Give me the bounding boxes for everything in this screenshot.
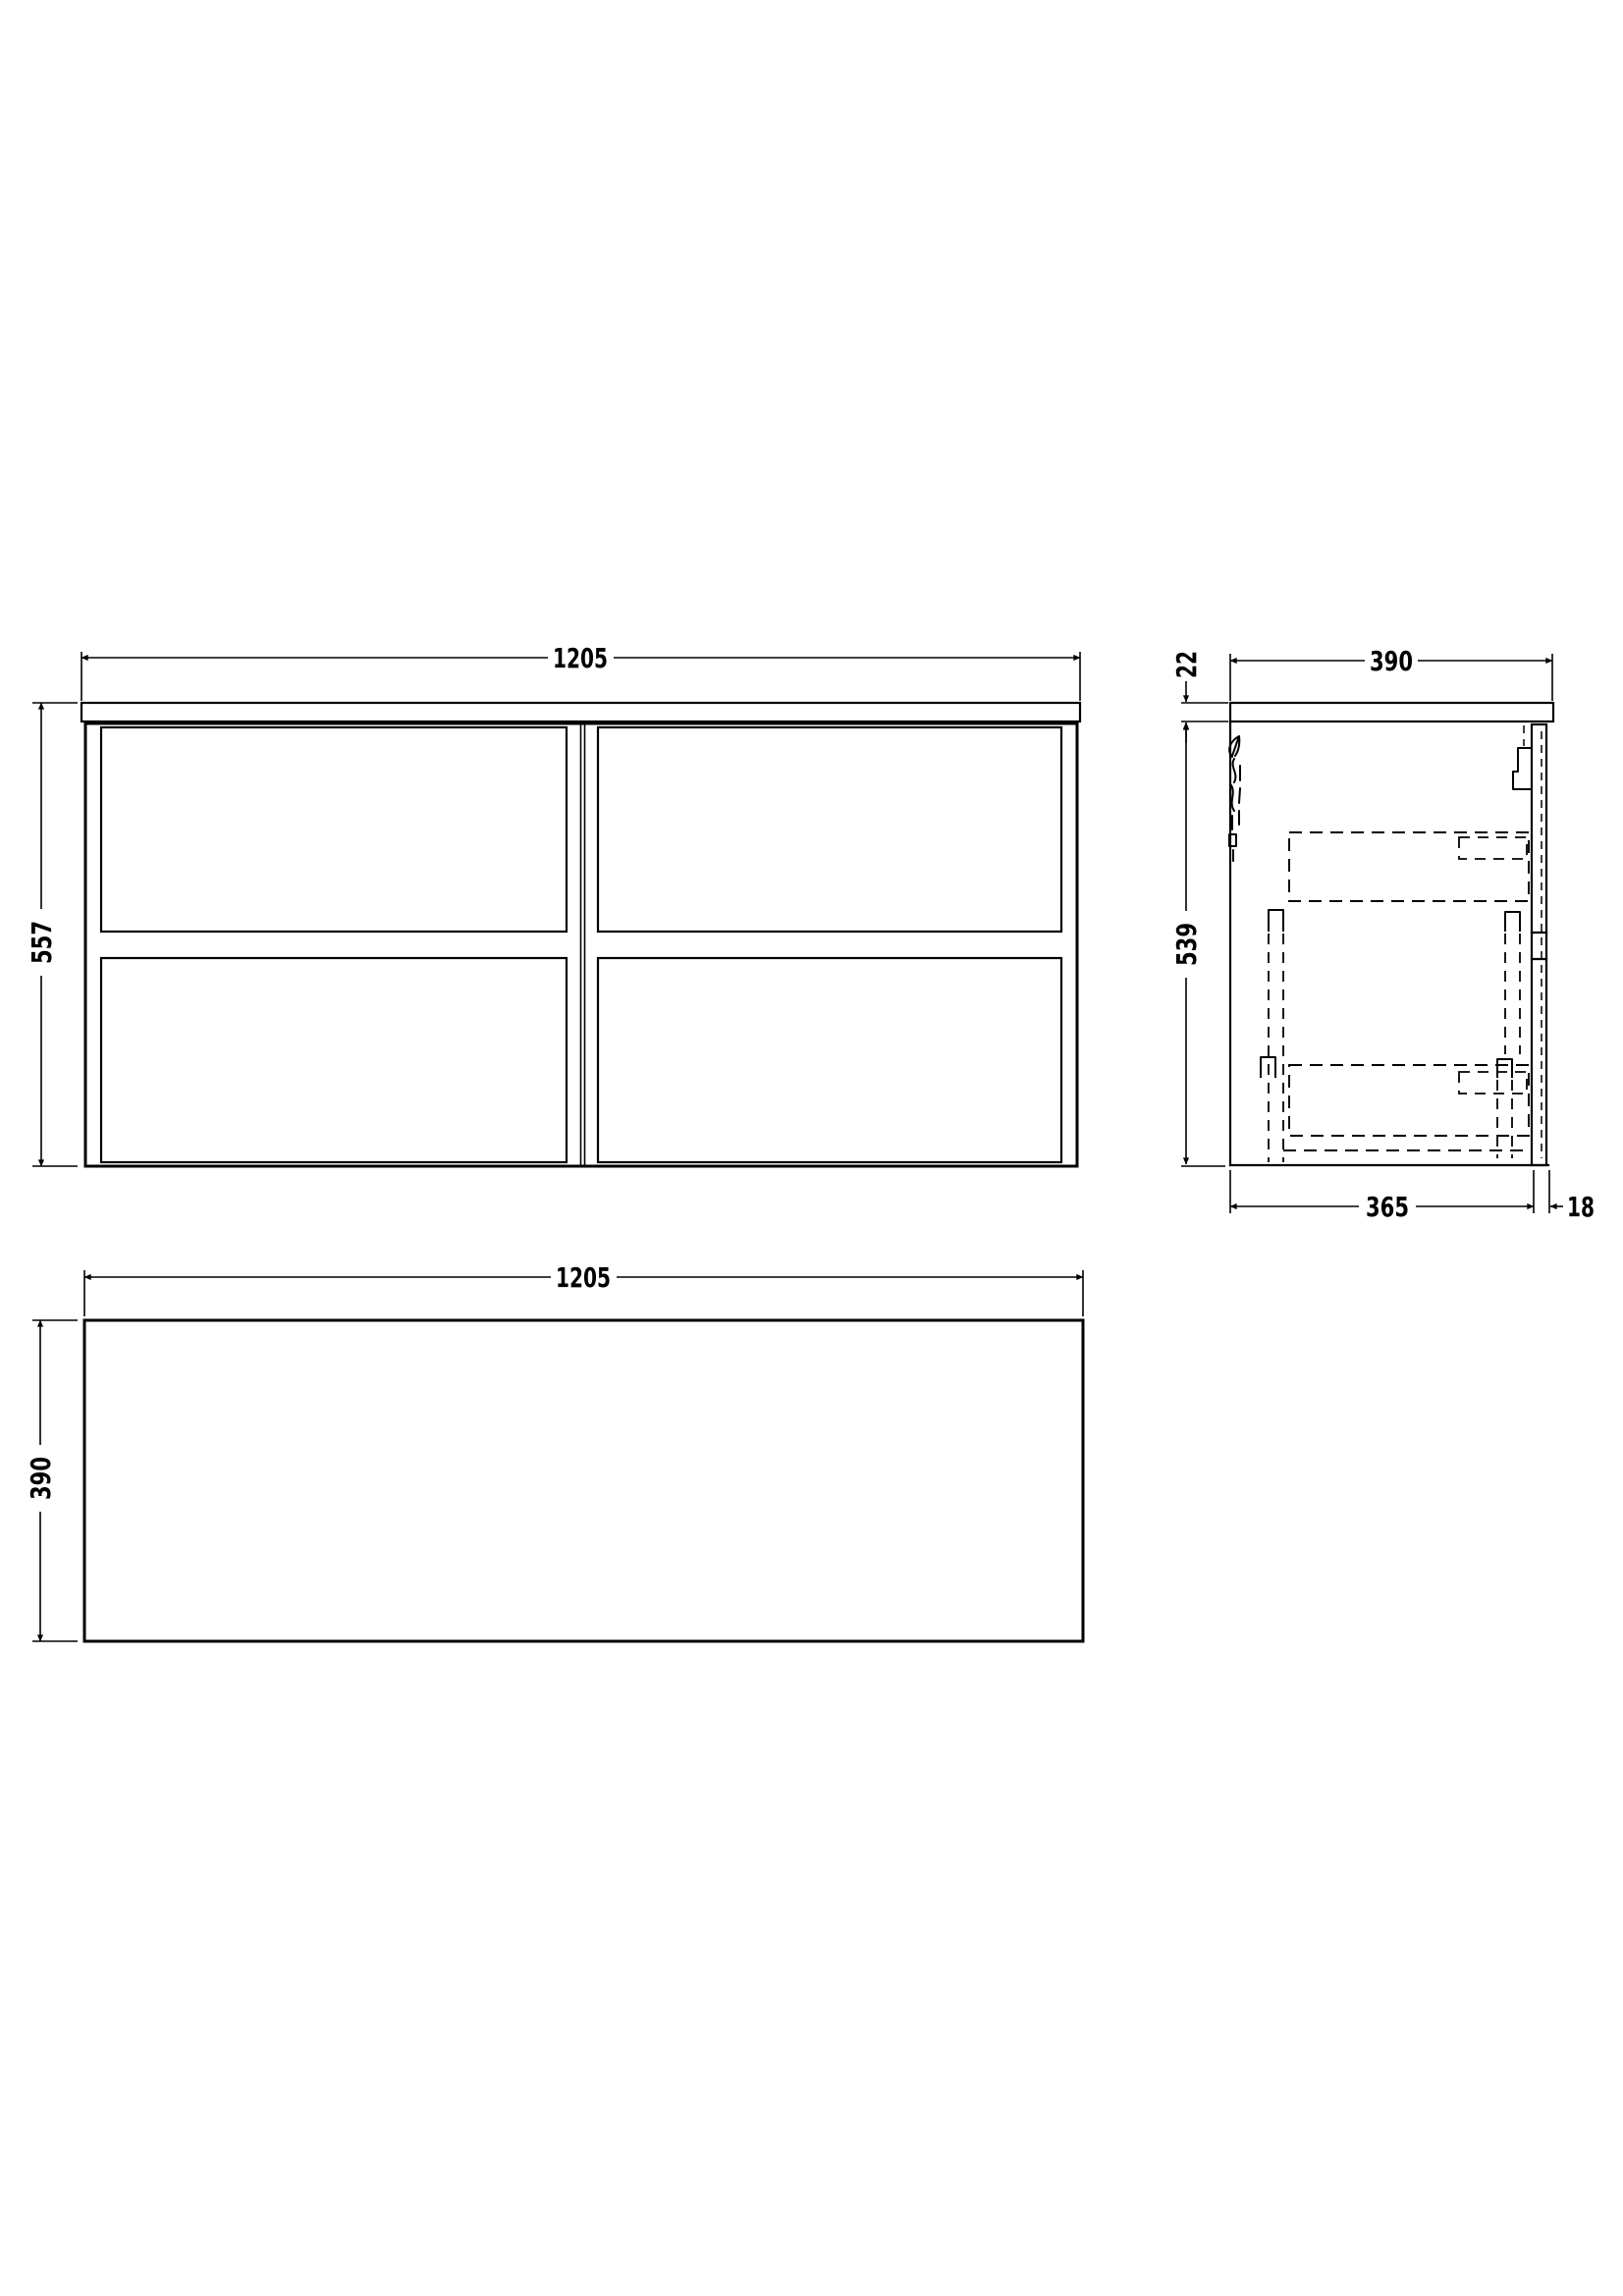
side-view (1229, 703, 1553, 1165)
side-countertop (1230, 703, 1553, 721)
plan-width-label: 1205 (556, 1261, 611, 1294)
front-height-label: 557 (26, 921, 58, 964)
side-drawer-front-panel (1532, 724, 1546, 1165)
side-upper-drawer-box-hidden (1289, 832, 1529, 901)
side-height-dimension: 539 (1170, 723, 1225, 1166)
front-drawer-top-right (598, 727, 1061, 932)
front-view (81, 703, 1080, 1166)
plan-width-dimension: 1205 (84, 1261, 1083, 1316)
drawing-sheet: 1205 557 (0, 0, 1623, 2296)
side-body-depth-dimension: 365 18 (1230, 1170, 1595, 1223)
side-lower-drawer-box-hidden (1289, 1065, 1529, 1136)
plan-view (84, 1320, 1083, 1641)
side-front-panel-thickness-label: 18 (1567, 1191, 1595, 1223)
side-countertop-thickness-dimension: 22 (1170, 651, 1228, 743)
plan-countertop-outline (84, 1320, 1083, 1641)
front-drawer-top-left (101, 727, 567, 932)
side-body-depth-label: 365 (1366, 1191, 1409, 1223)
side-depth-label: 390 (1370, 645, 1413, 677)
side-depth-dimension: 390 (1230, 645, 1552, 701)
vanity-unit-technical-drawing: 1205 557 (0, 0, 1623, 2296)
plan-depth-label: 390 (25, 1457, 57, 1500)
side-top-fixing-bracket (1513, 748, 1532, 789)
front-width-label: 1205 (553, 642, 608, 674)
front-countertop (81, 703, 1080, 721)
side-lower-front-runner-bracket (1497, 1059, 1512, 1078)
front-width-dimension: 1205 (81, 642, 1080, 701)
plan-depth-dimension: 390 (25, 1320, 78, 1641)
front-drawer-bottom-right (598, 958, 1061, 1162)
front-drawer-bottom-left (101, 958, 567, 1162)
side-countertop-thickness-label: 22 (1170, 651, 1203, 678)
side-height-label: 539 (1170, 923, 1203, 966)
front-height-dimension: 557 (26, 703, 78, 1166)
side-upper-front-runner-bracket (1505, 912, 1520, 932)
side-upper-drawer-connector-hidden (1459, 837, 1527, 859)
side-lower-drawer-connector-hidden (1459, 1072, 1527, 1094)
side-upper-back-runner-bracket (1269, 910, 1283, 932)
